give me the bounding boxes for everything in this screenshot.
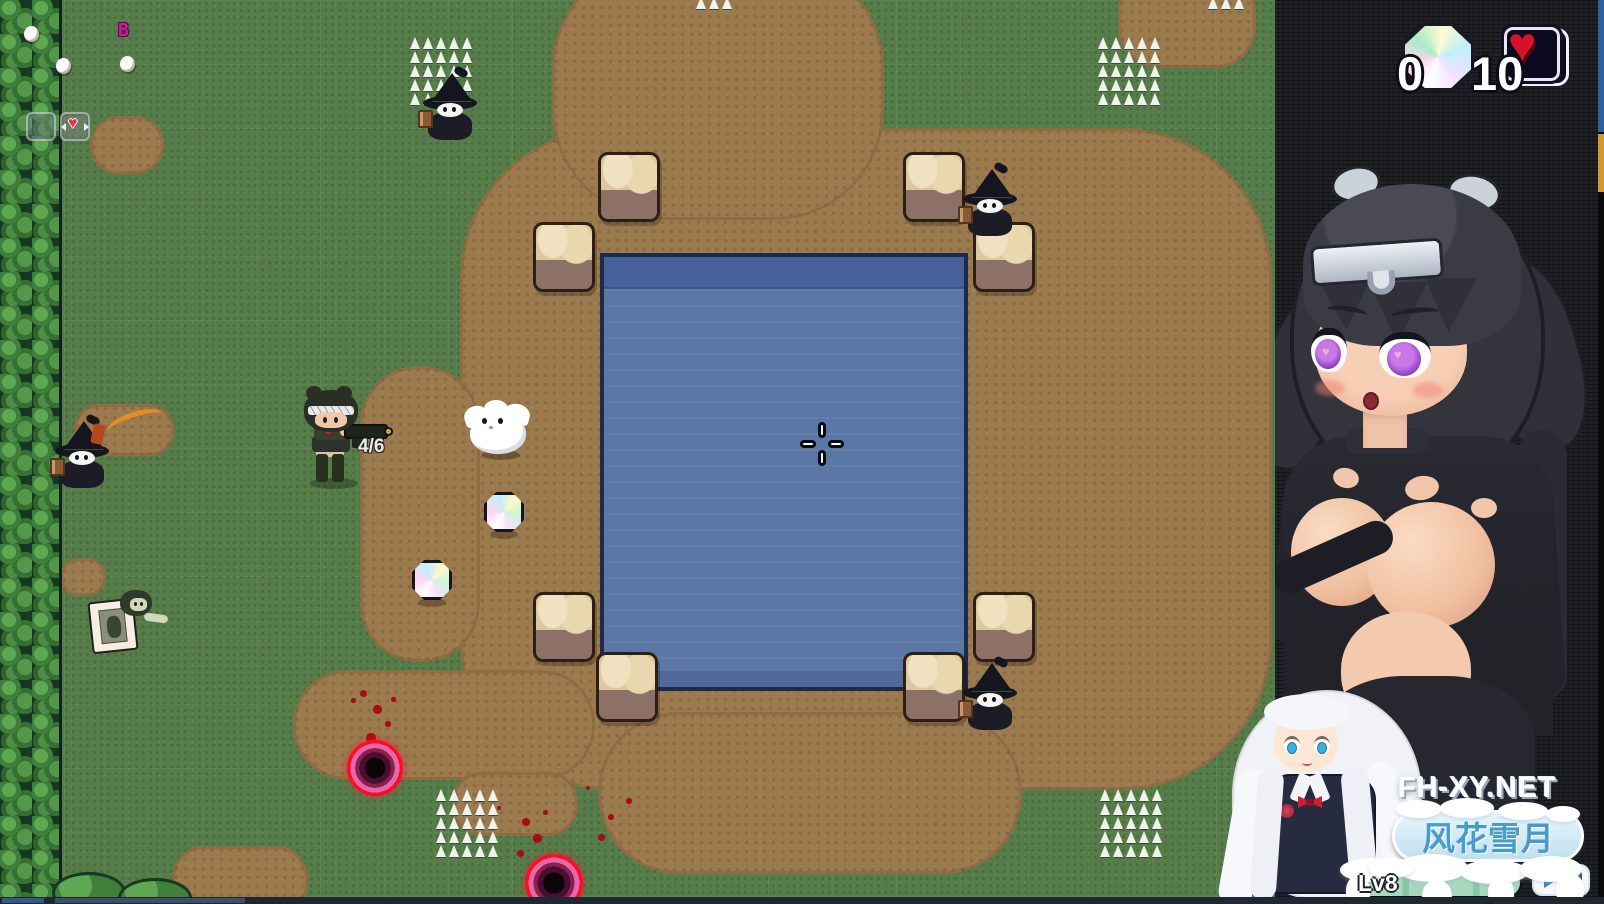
window-bottom-edge: [0, 897, 1604, 904]
rose-brooch-icon: [1280, 804, 1294, 818]
scrollbar-thumb-blue: [1598, 0, 1604, 132]
level-label: Lv8: [1358, 870, 1398, 897]
game-viewport[interactable]: 4/6 B ♥: [0, 0, 1275, 897]
scrollbar-mark-orange: [1598, 134, 1604, 192]
item-slot-bar[interactable]: ♥: [26, 112, 96, 144]
portrait-eye: ♥: [1311, 328, 1347, 372]
crosshair-cursor[interactable]: [800, 422, 850, 472]
heart-item-icon: ♥: [68, 115, 78, 133]
gem-counter-value: 0: [1397, 50, 1423, 97]
health-counter-value: 10: [1471, 50, 1523, 97]
characters-layer: 4/6: [0, 0, 1275, 897]
player-character: 4/6: [296, 390, 396, 496]
gun-muzzle: [384, 427, 393, 436]
slot-prev-arrow-icon: [61, 123, 66, 131]
grave-spawner: [90, 590, 172, 660]
ammo-counter: 4/6: [358, 436, 384, 458]
item-slot-heart[interactable]: ♥: [60, 112, 90, 141]
slot-next-arrow-icon: [84, 123, 89, 131]
watermark-banner-text: 风花雪月: [1422, 812, 1554, 860]
window-scrollbar[interactable]: [1598, 0, 1604, 897]
item-slot-empty[interactable]: [26, 112, 56, 141]
whip-attack-effect: [88, 412, 168, 448]
watermark-overlay: FH-XY.NET 风花雪月 Lv8: [1228, 672, 1604, 904]
bunny-creature: [464, 404, 536, 462]
buff-letter-b: B: [118, 20, 129, 41]
game-window: 4/6 B ♥: [0, 0, 1604, 904]
portrait-eye: ♥: [1379, 332, 1431, 378]
